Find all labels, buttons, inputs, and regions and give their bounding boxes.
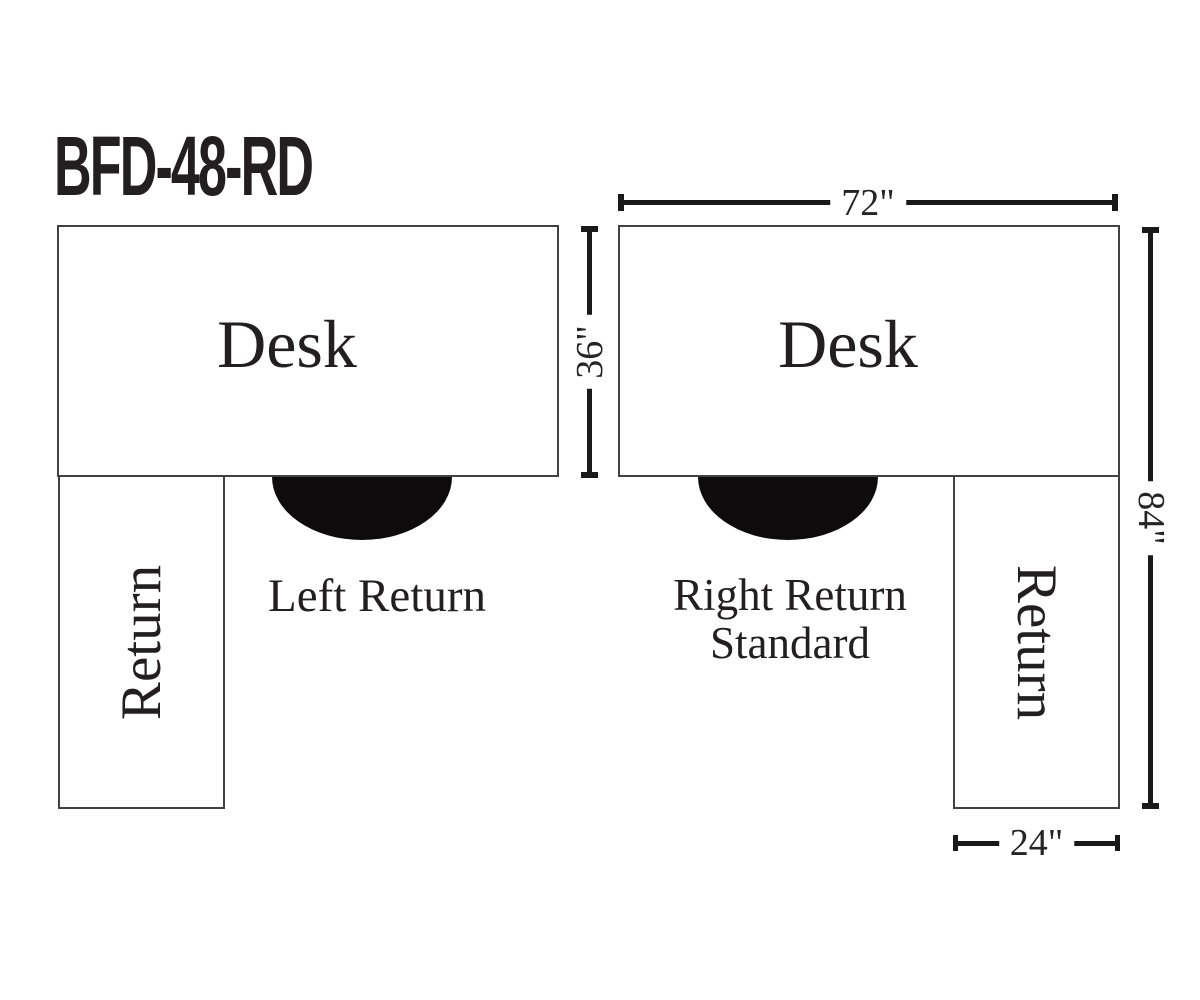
right-caption-line1: Right Return <box>640 571 940 619</box>
dimension-tick-icon <box>1142 803 1159 809</box>
dimension-return-width: 24" <box>953 835 1120 851</box>
product-code-title: BFD-48-RD <box>54 124 470 208</box>
left-configuration-caption: Left Return <box>227 572 527 620</box>
dimension-tick-icon <box>1115 835 1120 851</box>
dimension-return-width-value: 24" <box>999 824 1075 862</box>
right-return-surface: Return <box>953 475 1120 809</box>
left-return-surface: Return <box>58 475 225 809</box>
right-configuration-caption: Right Return Standard <box>640 571 940 667</box>
right-desk-surface: Desk <box>618 225 1120 477</box>
left-return-surface-label: Return <box>113 564 170 719</box>
right-desk-label: Desk <box>778 310 918 378</box>
dimension-total-depth: 84" <box>1142 227 1159 809</box>
right-return-surface-label: Return <box>1008 564 1065 719</box>
dimension-total-depth-value: 84" <box>1132 481 1170 555</box>
left-desk-label: Desk <box>217 310 357 378</box>
product-code-text: BFD-48-RD <box>54 124 312 208</box>
dimension-desk-width: 72" <box>618 194 1118 211</box>
dimension-tick-icon <box>581 472 598 478</box>
dimension-tick-icon <box>1112 194 1118 211</box>
dimension-desk-depth-value: 36" <box>571 315 609 389</box>
right-caption-line2: Standard <box>640 619 940 667</box>
dimension-desk-depth: 36" <box>581 226 598 478</box>
desk-spec-diagram: BFD-48-RD Desk Return Left Return 36" 72… <box>0 0 1200 1000</box>
dimension-desk-width-value: 72" <box>830 184 906 222</box>
left-desk-surface: Desk <box>57 225 559 477</box>
